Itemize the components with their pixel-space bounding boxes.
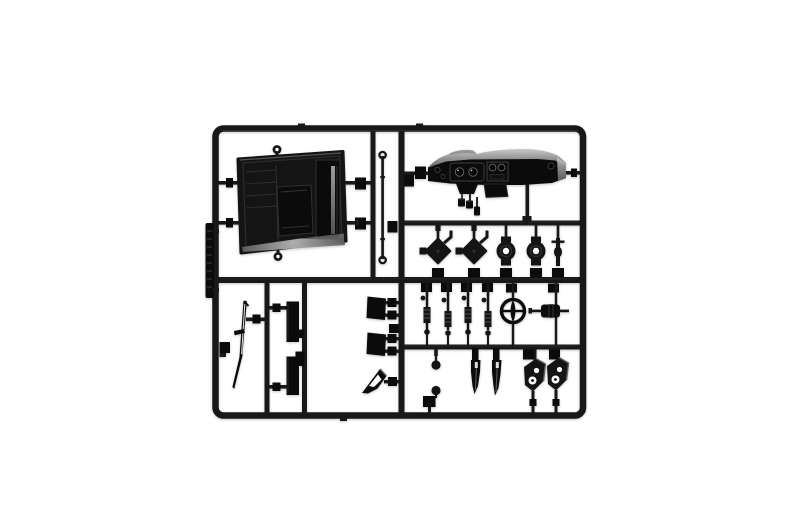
number-tab bbox=[506, 284, 517, 293]
photo-canvas bbox=[0, 0, 800, 530]
gate-stub bbox=[340, 417, 347, 421]
number-tab bbox=[548, 284, 559, 293]
number-tab bbox=[404, 175, 414, 187]
gate-stub bbox=[416, 124, 423, 128]
sprue-photo bbox=[0, 0, 800, 530]
number-tab bbox=[423, 396, 436, 407]
number-tab bbox=[500, 268, 512, 278]
number-tab bbox=[389, 324, 399, 333]
number-tab bbox=[468, 268, 480, 278]
number-tab bbox=[523, 350, 534, 360]
number-tab bbox=[441, 283, 452, 292]
number-tab bbox=[415, 167, 426, 180]
number-tab bbox=[355, 178, 366, 190]
number-tab bbox=[388, 221, 398, 233]
number-tab bbox=[552, 268, 564, 278]
number-tab bbox=[432, 268, 444, 278]
number-tab bbox=[530, 268, 542, 278]
gate-stub bbox=[298, 124, 305, 128]
number-tab bbox=[461, 283, 472, 292]
